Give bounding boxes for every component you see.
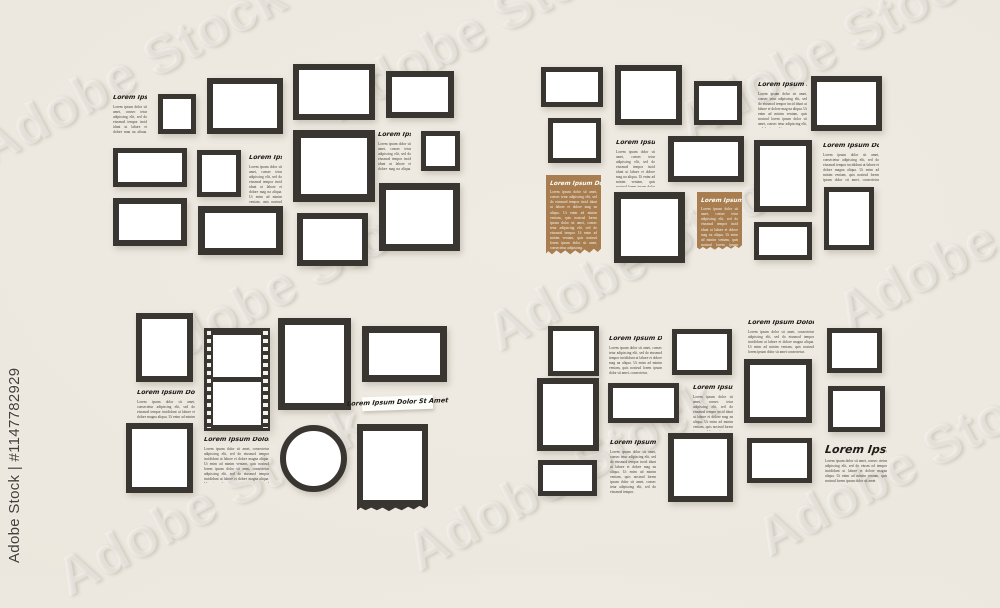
caption-body: Lorem ipsum dolor sit amet, consec ctetu… bbox=[825, 459, 887, 484]
caption-title: Lorem Ipsum Dolor bbox=[610, 440, 656, 447]
caption-block: Lorem Ipsum Dolor Lorem ipsum dolor sit … bbox=[610, 440, 656, 494]
photo-frame bbox=[538, 460, 597, 496]
collage-bottom-right: Lorem Ipsum Dolor Lorem ipsum dolor sit … bbox=[0, 0, 1000, 575]
photo-frame bbox=[672, 329, 732, 375]
caption-block: Lorem Ipsum Dolor Lorem ipsum dolor sit … bbox=[693, 385, 733, 431]
caption-body: Lorem ipsum dolor sit amet, consectetur … bbox=[748, 330, 814, 355]
photo-frame bbox=[548, 326, 599, 376]
photo-frame bbox=[668, 433, 733, 502]
caption-body: Lorem ipsum dolor sit amet, consec tetur… bbox=[610, 450, 656, 494]
photo-frame bbox=[537, 378, 599, 451]
caption-body: Lorem ipsum dolor sit amet, consec tetur… bbox=[609, 346, 662, 374]
photo-frame bbox=[828, 386, 885, 432]
caption-block: Lorem Ipsum Dolor Lorem ipsum dolor sit … bbox=[825, 444, 887, 502]
photo-frame bbox=[827, 328, 882, 373]
caption-title: Lorem Ipsum Dolor bbox=[825, 444, 887, 456]
caption-body: Lorem ipsum dolor sit amet, consec tetur… bbox=[693, 395, 733, 431]
caption-title: Lorem Ipsum Dolor St Amet bbox=[748, 320, 814, 327]
caption-title: Lorem Ipsum Dolor bbox=[609, 336, 662, 343]
photo-frame bbox=[608, 383, 679, 423]
caption-block: Lorem Ipsum Dolor Lorem ipsum dolor sit … bbox=[609, 336, 662, 374]
caption-block: Lorem Ipsum Dolor St Amet Lorem ipsum do… bbox=[748, 320, 814, 357]
photo-frame bbox=[744, 359, 812, 423]
photo-frame bbox=[747, 438, 812, 483]
caption-title: Lorem Ipsum Dolor bbox=[693, 385, 733, 392]
stock-id-watermark: Adobe Stock | #1147782929 bbox=[6, 303, 23, 563]
